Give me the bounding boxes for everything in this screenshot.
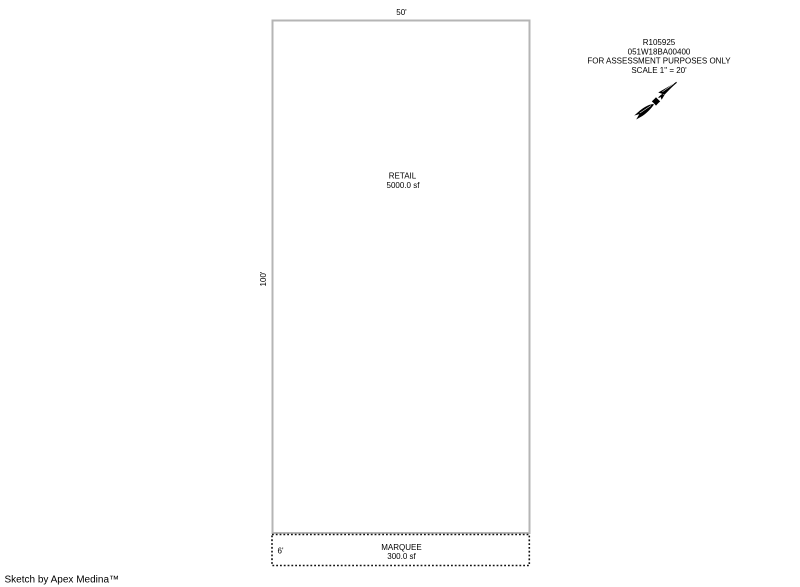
svg-text:50': 50' bbox=[396, 8, 407, 17]
svg-text:5000.0 sf: 5000.0 sf bbox=[387, 181, 421, 190]
svg-text:300.0 sf: 300.0 sf bbox=[387, 552, 416, 561]
svg-text:100': 100' bbox=[259, 271, 268, 286]
svg-text:FOR ASSESSMENT PURPOSES ONLY: FOR ASSESSMENT PURPOSES ONLY bbox=[587, 57, 731, 66]
svg-text:RETAIL: RETAIL bbox=[389, 172, 417, 181]
svg-text:MARQUEE: MARQUEE bbox=[381, 543, 421, 552]
svg-text:SCALE 1" = 20': SCALE 1" = 20' bbox=[631, 66, 687, 75]
svg-text:Sketch by Apex Medina™: Sketch by Apex Medina™ bbox=[5, 575, 120, 586]
svg-text:R105925: R105925 bbox=[643, 38, 676, 47]
svg-text:6': 6' bbox=[278, 547, 284, 556]
svg-text:051W18BA00400: 051W18BA00400 bbox=[628, 47, 691, 56]
